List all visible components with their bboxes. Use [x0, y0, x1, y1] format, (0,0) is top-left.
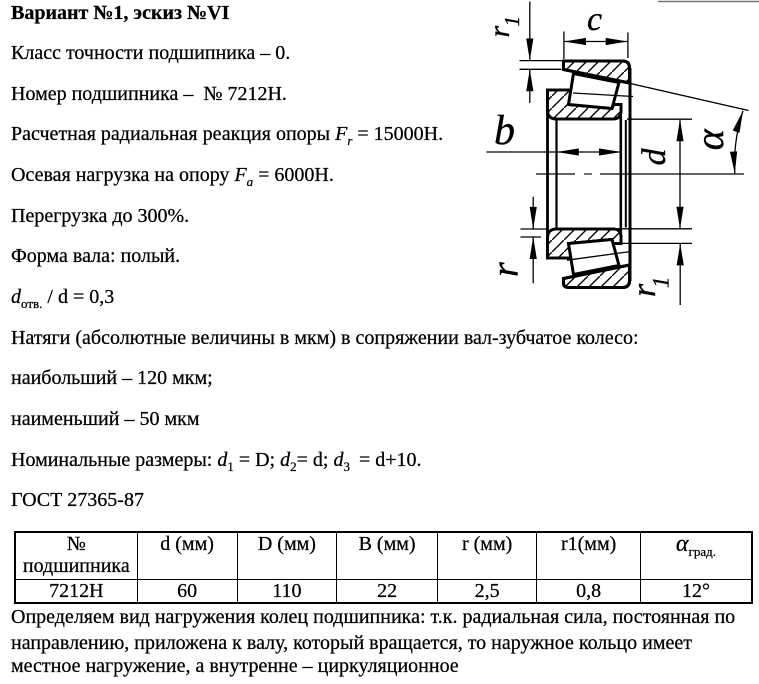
svg-text:r: r [485, 262, 527, 277]
svg-text:b: b [494, 108, 515, 154]
svg-text:1: 1 [649, 277, 674, 289]
svg-text:d: d [636, 148, 673, 166]
svg-text:c: c [587, 1, 602, 38]
svg-text:1: 1 [500, 16, 524, 27]
svg-text:α: α [687, 128, 732, 150]
